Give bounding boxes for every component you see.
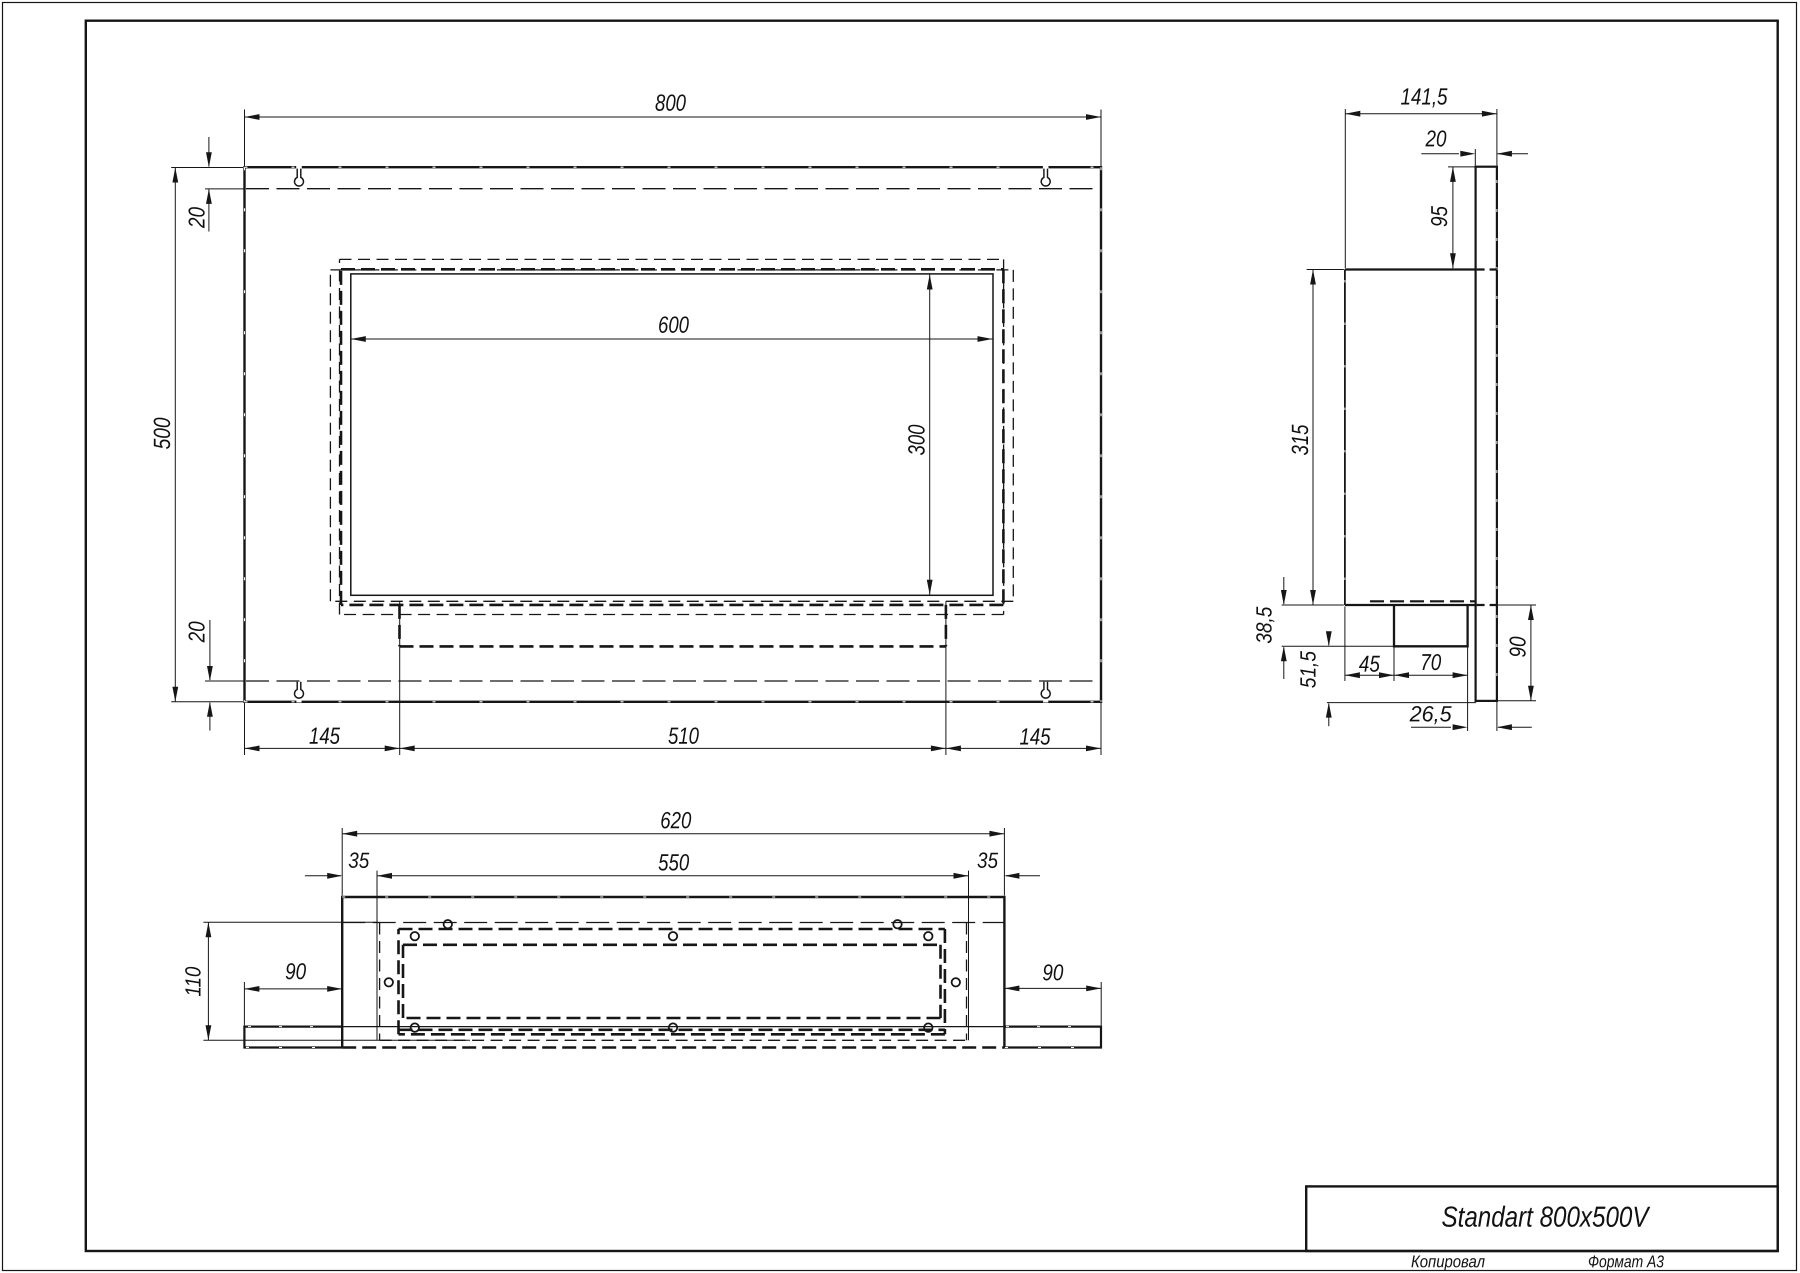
- svg-text:20: 20: [184, 621, 210, 643]
- svg-text:550: 550: [658, 849, 689, 875]
- svg-text:20: 20: [183, 207, 209, 229]
- svg-text:Формат А3: Формат А3: [1588, 1252, 1664, 1271]
- svg-text:45: 45: [1359, 651, 1380, 677]
- svg-text:35: 35: [348, 848, 370, 873]
- svg-text:35: 35: [977, 848, 999, 873]
- svg-text:20: 20: [1425, 125, 1447, 151]
- svg-text:90: 90: [1505, 636, 1531, 657]
- svg-text:95: 95: [1426, 206, 1452, 227]
- svg-text:26,5: 26,5: [1409, 701, 1453, 726]
- svg-text:145: 145: [309, 723, 341, 749]
- svg-text:Standart 800x500V: Standart 800x500V: [1441, 1202, 1650, 1234]
- svg-text:90: 90: [1042, 959, 1063, 985]
- svg-text:90: 90: [285, 958, 306, 984]
- svg-text:Копировал: Копировал: [1411, 1252, 1485, 1271]
- svg-text:38,5: 38,5: [1251, 606, 1276, 644]
- svg-text:300: 300: [904, 425, 930, 456]
- svg-text:51,5: 51,5: [1295, 650, 1320, 688]
- svg-text:500: 500: [149, 417, 175, 449]
- svg-text:800: 800: [655, 90, 686, 116]
- svg-text:141,5: 141,5: [1400, 83, 1448, 109]
- svg-text:510: 510: [668, 723, 699, 749]
- svg-text:315: 315: [1287, 424, 1313, 456]
- svg-text:600: 600: [658, 312, 689, 338]
- svg-text:70: 70: [1420, 649, 1441, 675]
- svg-text:145: 145: [1019, 723, 1051, 749]
- svg-text:110: 110: [180, 966, 205, 997]
- svg-text:620: 620: [660, 807, 691, 833]
